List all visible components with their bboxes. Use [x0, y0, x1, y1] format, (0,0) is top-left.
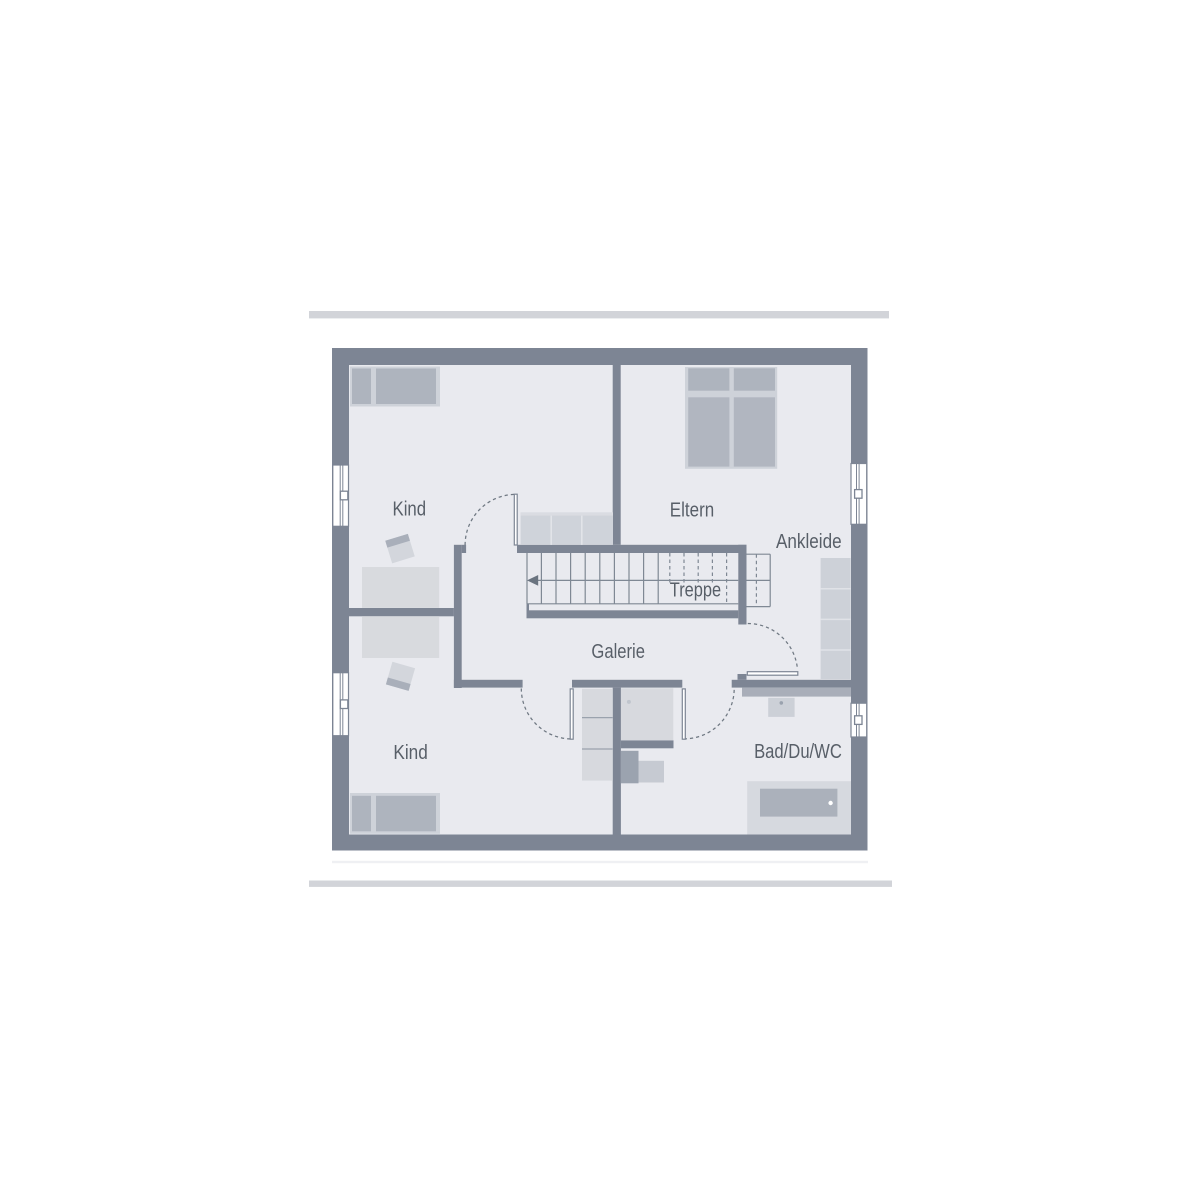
svg-text:Bad/Du/WC: Bad/Du/WC: [754, 740, 842, 763]
svg-text:Galerie: Galerie: [591, 640, 645, 663]
svg-text:Treppe: Treppe: [670, 579, 721, 602]
svg-text:Kind: Kind: [393, 741, 427, 764]
svg-text:Kind: Kind: [393, 498, 427, 521]
svg-text:Eltern: Eltern: [670, 499, 714, 522]
svg-text:Ankleide: Ankleide: [776, 530, 842, 553]
